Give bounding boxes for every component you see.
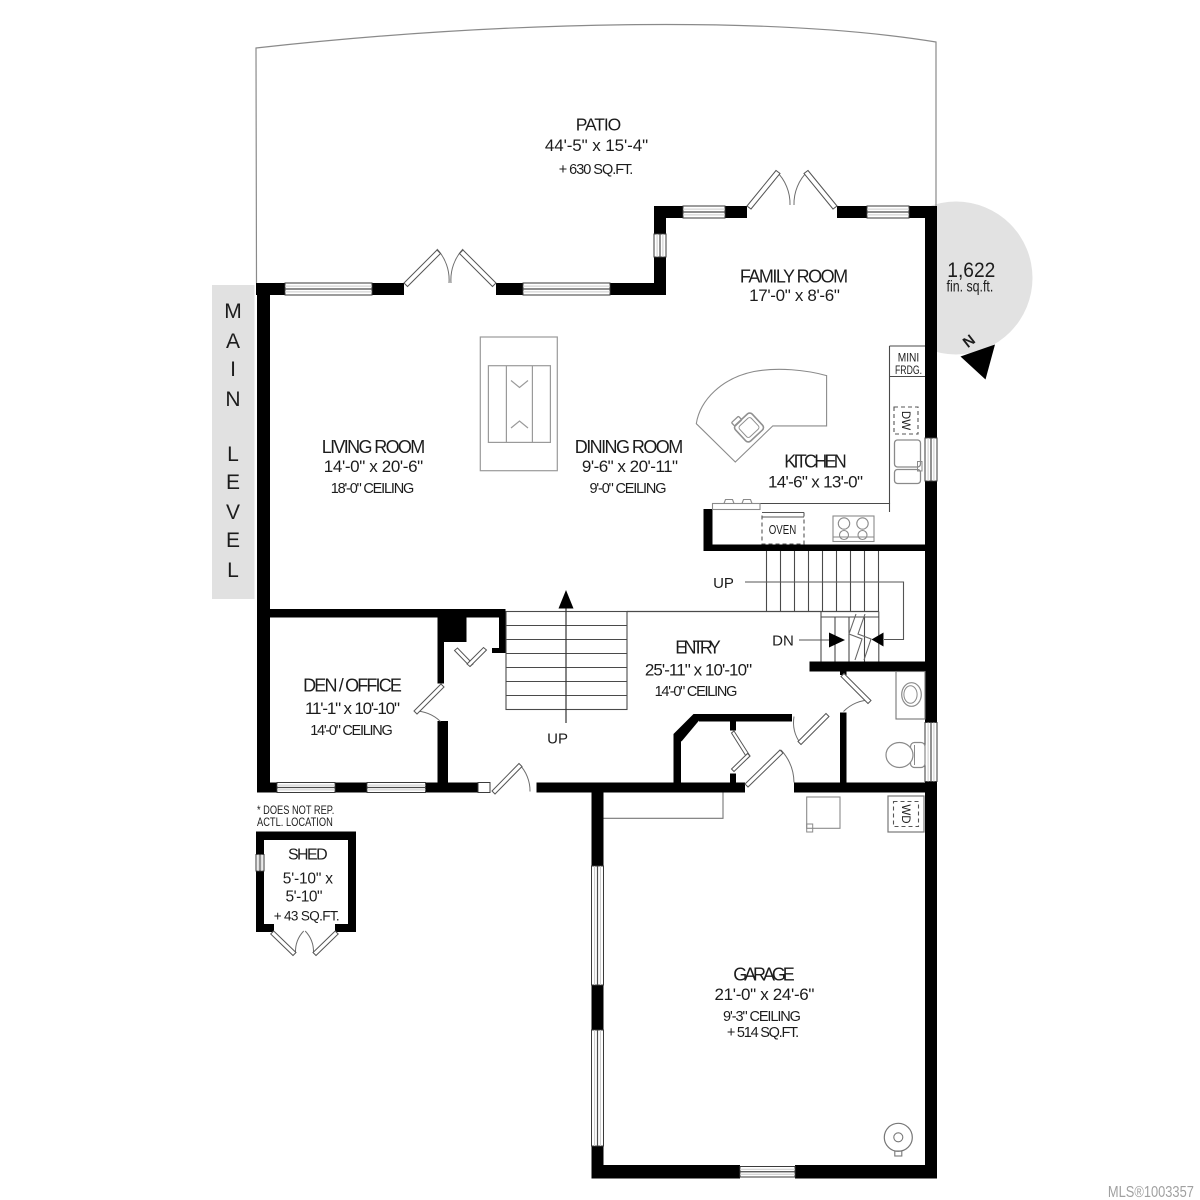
svg-text:E: E bbox=[226, 529, 240, 552]
svg-text:DN: DN bbox=[772, 632, 794, 649]
svg-text:ENTRY: ENTRY bbox=[675, 637, 721, 657]
svg-text:+ 43 SQ.FT.: + 43 SQ.FT. bbox=[274, 909, 340, 924]
svg-text:GARAGE: GARAGE bbox=[733, 965, 795, 985]
svg-text:KITCHEN: KITCHEN bbox=[784, 452, 847, 472]
svg-text:14'-6" x 13'-0": 14'-6" x 13'-0" bbox=[768, 473, 863, 492]
svg-text:5'-10": 5'-10" bbox=[286, 889, 323, 906]
svg-text:PATIO: PATIO bbox=[576, 115, 622, 135]
svg-text:fin. sq.ft.: fin. sq.ft. bbox=[947, 279, 994, 296]
svg-text:MLS®1003357: MLS®1003357 bbox=[1108, 1184, 1194, 1200]
svg-text:17'-0" x 8'-6": 17'-0" x 8'-6" bbox=[749, 286, 840, 305]
svg-text:WD: WD bbox=[899, 804, 911, 823]
svg-text:N: N bbox=[225, 388, 240, 411]
svg-text:DW: DW bbox=[899, 411, 911, 430]
svg-text:+ 514 SQ.FT.: + 514 SQ.FT. bbox=[727, 1025, 799, 1041]
svg-text:11'-1" x 10'-10": 11'-1" x 10'-10" bbox=[305, 699, 400, 718]
svg-text:I: I bbox=[230, 358, 236, 381]
svg-text:V: V bbox=[226, 501, 240, 524]
svg-text:25'-11" x 10'-10": 25'-11" x 10'-10" bbox=[645, 661, 752, 680]
svg-text:44'-5" x 15'-4": 44'-5" x 15'-4" bbox=[545, 136, 648, 155]
svg-text:UP: UP bbox=[547, 731, 568, 748]
svg-text:FRDG.: FRDG. bbox=[895, 365, 922, 377]
svg-text:14'-0" CEILING: 14'-0" CEILING bbox=[310, 723, 393, 739]
svg-text:MINI: MINI bbox=[898, 353, 920, 365]
svg-text:5'-10" x: 5'-10" x bbox=[283, 871, 334, 888]
svg-text:L: L bbox=[227, 443, 239, 466]
svg-text:OVEN: OVEN bbox=[769, 523, 797, 537]
svg-text:9'-3" CEILING: 9'-3" CEILING bbox=[723, 1009, 801, 1025]
svg-text:FAMILY ROOM: FAMILY ROOM bbox=[740, 267, 848, 287]
svg-text:14'-0" CEILING: 14'-0" CEILING bbox=[655, 684, 738, 700]
svg-text:UP: UP bbox=[713, 575, 734, 592]
svg-text:A: A bbox=[226, 330, 240, 353]
svg-text:LIVING ROOM: LIVING ROOM bbox=[322, 437, 426, 457]
svg-text:14'-0" x 20'-6": 14'-0" x 20'-6" bbox=[324, 457, 423, 476]
svg-text:9'-6" x 20'-11": 9'-6" x 20'-11" bbox=[582, 457, 678, 476]
svg-text:9'-0" CEILING: 9'-0" CEILING bbox=[590, 481, 667, 497]
svg-text:E: E bbox=[226, 471, 240, 494]
svg-text:DEN / OFFICE: DEN / OFFICE bbox=[303, 675, 402, 695]
svg-text:18'-0" CEILING: 18'-0" CEILING bbox=[331, 481, 415, 497]
svg-text:SHED: SHED bbox=[288, 847, 328, 864]
svg-text:ACTL. LOCATION: ACTL. LOCATION bbox=[257, 815, 333, 829]
svg-text:+ 630 SQ.FT.: + 630 SQ.FT. bbox=[559, 162, 634, 178]
svg-text:DINING ROOM: DINING ROOM bbox=[575, 437, 684, 457]
svg-text:21'-0" x 24'-6": 21'-0" x 24'-6" bbox=[715, 985, 815, 1004]
svg-text:L: L bbox=[227, 559, 239, 582]
svg-text:M: M bbox=[224, 300, 242, 323]
